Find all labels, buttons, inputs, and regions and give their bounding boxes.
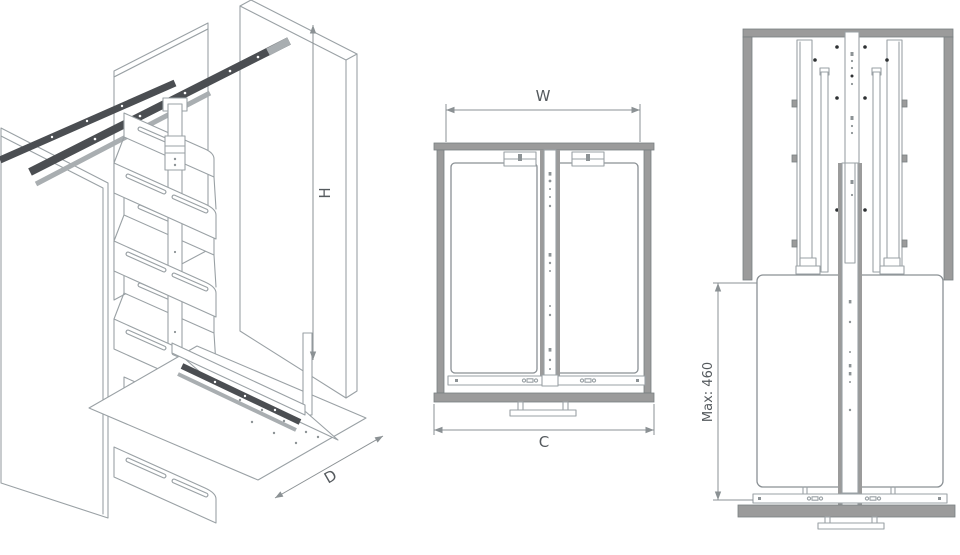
technical-drawing-page: H D W [0,0,960,555]
central-rail-top-view [540,150,560,381]
isometric-view-svg: H D [0,0,420,555]
dim-label-c: C [539,433,549,451]
front-view-svg: Max: 460 [700,0,960,555]
front-handle [818,517,884,529]
bottom-plate-top-view [448,375,645,386]
lower-column [838,163,862,508]
dimension-max-460: Max: 460 [701,283,757,500]
pullout-frame-front-wall [114,447,216,523]
dimension-W: W [446,87,640,142]
upper-telescopic-column [845,32,859,163]
front-handle-top-view [510,402,576,416]
dim-label-h: H [316,187,334,198]
dim-label-max: Max: 460 [701,362,716,422]
plan-view-svg: W [420,0,700,555]
dim-label-d: D [321,466,340,487]
dim-label-w: W [536,87,551,105]
